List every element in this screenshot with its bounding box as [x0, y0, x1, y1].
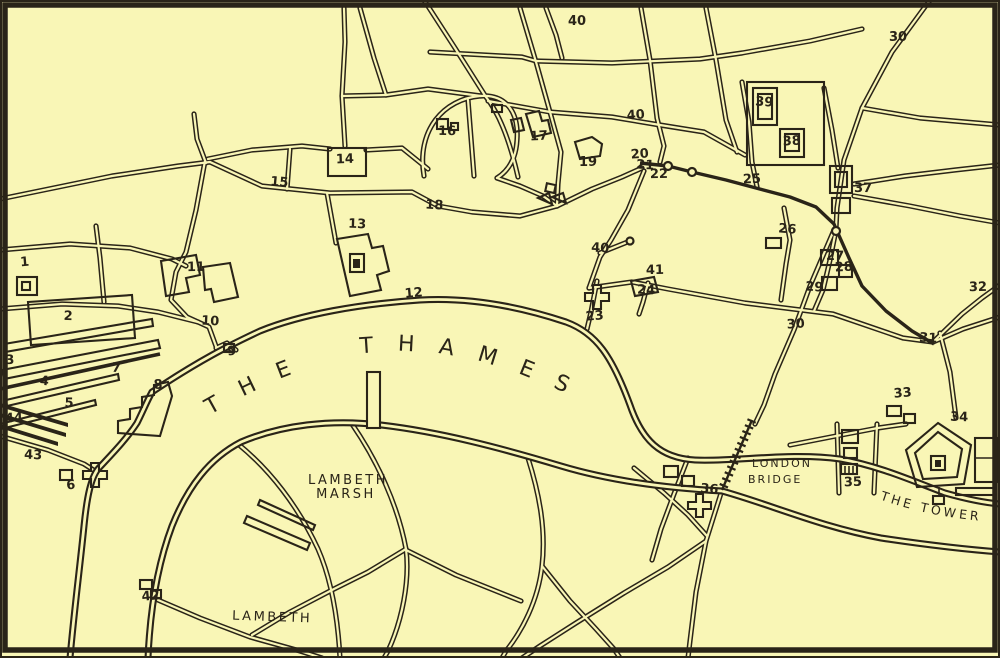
site-marker-25: 25 — [743, 172, 762, 188]
lambeth-marsh-label: MARSH — [316, 487, 376, 502]
site-marker-8: 8 — [153, 378, 162, 393]
site-marker-34: 34 — [950, 410, 969, 426]
site-marker-7: 7 — [111, 361, 121, 377]
site-marker-10: 10 — [201, 314, 220, 330]
river-pier — [367, 372, 380, 428]
site-marker-5: 5 — [64, 396, 73, 411]
site-marker-1: 1 — [20, 255, 30, 271]
site-marker-33: 33 — [893, 385, 912, 402]
site-marker-30: 30 — [889, 30, 907, 45]
site-marker-22: 22 — [650, 167, 668, 182]
site-marker-16: 16 — [438, 124, 456, 139]
site-marker-18: 18 — [425, 197, 444, 213]
map-page: THE THAMES LAMBETH MARSH LAMBETH LONDON … — [0, 0, 1000, 658]
site-marker-6: 6 — [66, 478, 76, 493]
wall-gate-icon — [832, 227, 840, 235]
site-marker-36: 36 — [700, 481, 719, 498]
site-marker-11: 11 — [187, 260, 205, 275]
site-marker-29: 29 — [805, 279, 824, 295]
site-marker-38: 38 — [782, 134, 801, 150]
site-marker-26: 26 — [778, 221, 797, 238]
site-marker-42: 42 — [141, 588, 160, 605]
site-marker-23: 23 — [585, 308, 604, 325]
london-bridge-label: BRIDGE — [748, 473, 802, 486]
site-marker-24: 24 — [637, 283, 656, 299]
site-marker-41: 41 — [646, 263, 664, 278]
site-marker-40: 40 — [568, 14, 586, 29]
site-marker-17: 17 — [529, 129, 548, 145]
site-marker-28: 28 — [834, 260, 853, 276]
site-marker-4: 4 — [39, 374, 49, 390]
site-marker-40: 40 — [591, 241, 610, 257]
lambeth-marsh-label: LAMBETH — [308, 473, 388, 488]
site-marker-13: 13 — [348, 217, 367, 233]
site-marker-30: 30 — [786, 316, 805, 332]
site-marker-31: 31 — [919, 331, 938, 347]
lambeth-label: LAMBETH — [232, 609, 312, 627]
london-bridge-label: LONDON — [752, 457, 812, 470]
site-marker-14: 14 — [336, 152, 355, 168]
site-marker-15: 15 — [270, 174, 289, 191]
wall-gate-icon — [688, 168, 696, 176]
site-marker-9: 9 — [227, 344, 237, 360]
site-marker-37: 37 — [854, 181, 872, 196]
site-marker-2: 2 — [63, 309, 73, 324]
london-map: THE THAMES LAMBETH MARSH LAMBETH LONDON … — [0, 0, 1000, 658]
site-marker-19: 19 — [579, 155, 597, 170]
site-marker-39: 39 — [755, 94, 774, 110]
site-marker-35: 35 — [844, 475, 863, 491]
site-marker-12: 12 — [404, 285, 423, 302]
site-marker-32: 32 — [969, 280, 987, 295]
wall-gate-icon — [627, 238, 634, 245]
site-marker-40: 40 — [626, 107, 645, 123]
site-marker-43: 43 — [24, 448, 43, 464]
